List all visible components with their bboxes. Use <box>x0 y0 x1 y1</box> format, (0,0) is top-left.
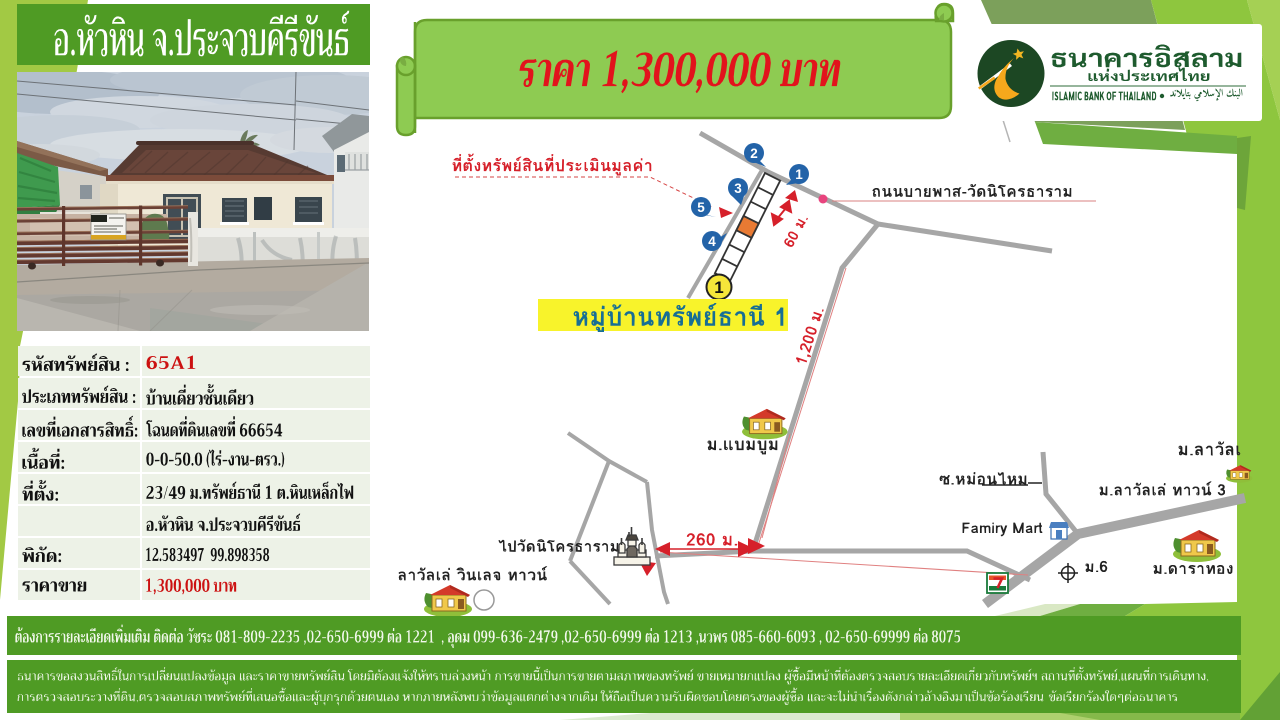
svg-text:2: 2 <box>750 146 758 161</box>
svg-text:1: 1 <box>714 278 723 297</box>
svg-text:1: 1 <box>795 167 803 182</box>
svg-text:4: 4 <box>708 234 716 249</box>
svg-text:5: 5 <box>697 200 705 215</box>
svg-text:3: 3 <box>734 181 742 196</box>
